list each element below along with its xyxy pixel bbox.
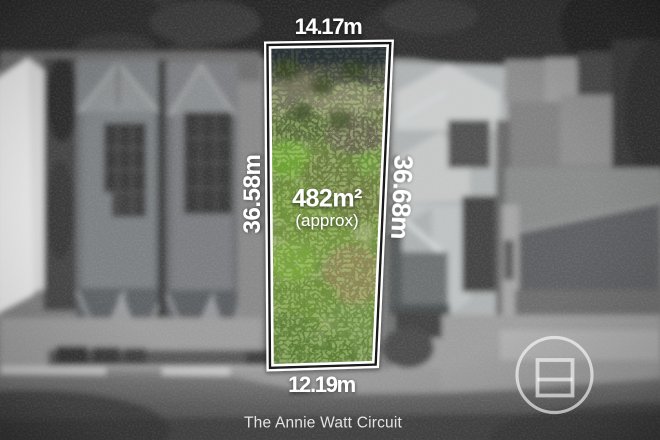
svg-text:36.68m: 36.68m: [385, 155, 419, 240]
svg-text:36.58m: 36.58m: [239, 155, 266, 234]
svg-text:14.17m: 14.17m: [295, 14, 363, 39]
svg-text:12.19m: 12.19m: [288, 372, 356, 397]
svg-text:The Annie Watt Circuit: The Annie Watt Circuit: [244, 415, 403, 432]
svg-text:(approx): (approx): [295, 211, 358, 230]
svg-text:482m²: 482m²: [292, 185, 362, 213]
